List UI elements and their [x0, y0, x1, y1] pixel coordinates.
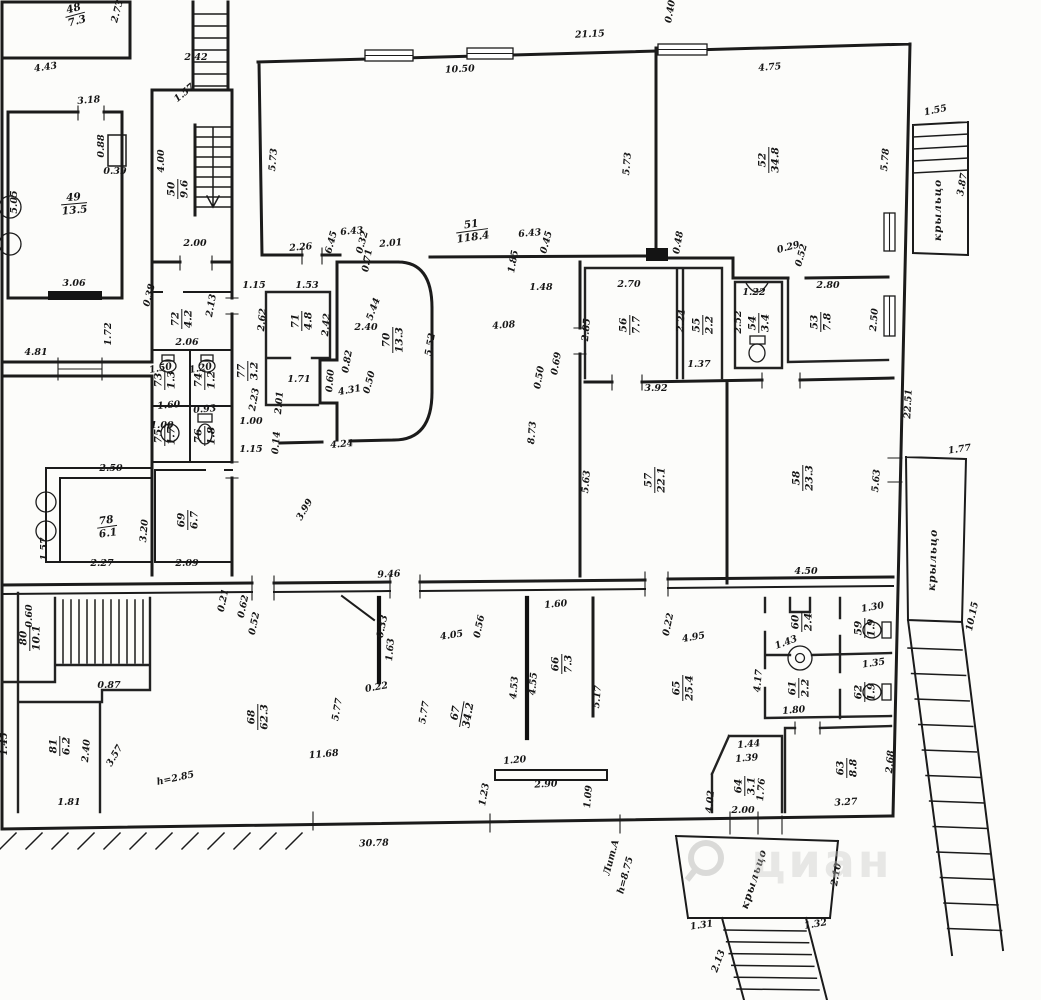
room-number: 58 [791, 470, 803, 485]
room-area: 2.2 [800, 679, 812, 698]
dimension-label: 2.52 [733, 310, 744, 335]
dimension-label: 5.05 [9, 190, 20, 214]
dimension-label: 1.60 [544, 598, 568, 611]
room-number: 77 [236, 363, 248, 378]
dimension-label: 3.57 [104, 743, 125, 769]
room-area: 6.2 [61, 737, 73, 755]
room-area: 1.2 [206, 371, 218, 389]
room-area: 3.4 [760, 314, 772, 332]
dimension-label: 0.82 [340, 349, 355, 374]
step-line [734, 977, 816, 978]
room-number: 53 [809, 315, 821, 330]
dimension-label: 2.50 [98, 463, 123, 474]
dimension-label: 2.13 [709, 948, 728, 975]
dimension-label: 4.95 [681, 630, 706, 645]
dimension-label: 1.15 [239, 444, 263, 455]
dimension-label: 1.44 [737, 738, 761, 751]
room-number: 50 [166, 181, 178, 196]
room-label: 714.8 [290, 311, 315, 331]
dimension-label: 0.22 [364, 680, 389, 695]
ground-hatch [0, 833, 302, 849]
porch-label: крыльцо [932, 179, 944, 241]
room-area: 7.7 [631, 315, 643, 334]
dimension-label: 0.56 [472, 614, 488, 639]
room-area: 34.8 [770, 147, 782, 173]
room-label: 816.2 [48, 736, 73, 756]
dimension-label: 10.50 [445, 63, 476, 76]
room-label: 761.8 [193, 426, 218, 446]
step-line [130, 833, 146, 849]
room-number: 78 [98, 513, 115, 527]
step-line [913, 146, 968, 149]
dimension-label: 21.15 [574, 28, 606, 41]
dimension-label: 10.15 [964, 600, 981, 632]
dimension-label: 4.08 [492, 319, 516, 332]
room-area: 3.2 [249, 362, 261, 380]
room-area: 23.3 [804, 465, 816, 492]
room-number: 69 [176, 512, 188, 527]
dimension-label: 2.50 [868, 307, 881, 332]
dimension-label: 1.23 [477, 782, 492, 807]
dimension-label: 2.26 [288, 241, 313, 254]
walls-main-horizontal [2, 577, 893, 594]
dimension-label: 1.09 [582, 784, 595, 808]
room-area: 4.2 [183, 310, 195, 328]
room-label: 6862.3 [246, 704, 271, 730]
dimension-label: 6.45 [323, 229, 340, 255]
dimension-label: 2.06 [174, 337, 199, 348]
room-label: 4913.5 [60, 190, 88, 217]
step-line [724, 930, 806, 931]
room-label: 786.1 [95, 513, 118, 541]
step-line [234, 833, 250, 849]
step-line [208, 833, 224, 849]
dimension-label: 5.73 [267, 147, 280, 171]
labels-layer: 487.34913.5509.651118.45234.8537.8543.45… [0, 0, 981, 975]
step-line [260, 833, 276, 849]
room-number: 51 [463, 218, 479, 232]
dimension-label: 1.76 [755, 777, 768, 801]
dimension-label: 2.01 [273, 391, 286, 416]
dimension-label: 4.75 [758, 61, 782, 74]
dimension-label: 2.40 [353, 322, 378, 333]
dimension-label: 1.81 [57, 797, 80, 808]
room-area: 7.8 [822, 312, 834, 331]
step-line [729, 954, 811, 955]
dimension-label: 1.72 [103, 322, 114, 346]
dimension-label: 0.48 [671, 230, 686, 255]
dimension-label: 4.31 [337, 383, 362, 398]
room-area: 13.5 [61, 203, 88, 217]
wall-pier [646, 248, 668, 261]
step-line [26, 833, 42, 849]
room-label: 773.2 [236, 361, 261, 381]
room-area: 10.1 [31, 625, 43, 651]
dimension-label: 2.73 [109, 0, 126, 25]
dimension-label: 5.52 [423, 332, 438, 357]
dimension-label: 5.77 [330, 697, 345, 722]
room-area: 6.1 [98, 526, 118, 540]
dimension-label: 0.87 [97, 680, 121, 691]
entry-steps [193, 14, 228, 86]
room-label: 51118.4 [454, 216, 490, 245]
step-line [922, 750, 976, 752]
dimension-label: 1.53 [295, 280, 319, 291]
dimension-label: 2.40 [80, 738, 93, 763]
room-number: 72 [170, 312, 182, 327]
step-line [913, 158, 968, 161]
step-line [156, 833, 172, 849]
walls-outer [2, 2, 910, 829]
step-line [915, 699, 969, 701]
dimension-label: 4.43 [33, 60, 58, 74]
room-number: 66 [550, 656, 562, 671]
room-area: 2.2 [704, 316, 716, 335]
dimension-label: 4.81 [24, 347, 47, 358]
annotation-note: h=8.75 [615, 855, 636, 895]
room-area: 1.3 [166, 371, 178, 389]
room-number: 61 [787, 681, 799, 696]
room-label: 667.3 [550, 654, 575, 674]
room-area: 7.3 [563, 655, 575, 673]
room-area: 2.4 [803, 613, 815, 632]
room-number: 71 [290, 314, 302, 329]
dimension-label: 1.63 [384, 637, 397, 661]
step-line [727, 942, 809, 943]
dimension-label: 1.80 [782, 704, 806, 717]
dimension-label: 2.62 [256, 307, 269, 332]
dimension-label: 2.01 [378, 237, 403, 250]
dimension-label: 1.35 [861, 656, 886, 670]
dimension-label: 0.50 [361, 369, 378, 395]
room-area: 13.3 [394, 327, 406, 353]
dimension-label: 0.88 [96, 134, 107, 158]
room-number: 76 [193, 428, 205, 443]
room-area: 9.6 [179, 179, 191, 198]
dimension-label: 4.50 [794, 566, 818, 577]
room-label: 6734.2 [447, 699, 476, 729]
step-line [182, 833, 198, 849]
porch-top-right-steps [913, 134, 968, 173]
step-line [908, 648, 962, 650]
dimension-label: 3.27 [834, 796, 858, 808]
dimension-label: 5.63 [870, 468, 883, 492]
dimension-label: 1.20 [503, 754, 527, 767]
dimension-label: 3.06 [62, 278, 86, 289]
dimension-label: 3.99 [294, 497, 315, 523]
step-line [940, 878, 994, 880]
dimension-label: 1.15 [242, 280, 266, 291]
dimension-label: 3.18 [77, 94, 101, 107]
room-area: 118.4 [456, 229, 490, 245]
dimension-label: 0.60 [324, 368, 337, 392]
room-label: 602.4 [790, 612, 815, 632]
watermark-logo-icon [691, 843, 721, 873]
dimension-label: 1.30 [860, 600, 885, 615]
windows [365, 44, 895, 336]
room-number: 49 [66, 191, 82, 204]
dimension-label: 1.77 [947, 442, 972, 456]
dimension-label: 1.48 [529, 282, 553, 293]
room-area: 1.8 [206, 426, 218, 445]
dimension-label: 22.51 [902, 389, 915, 420]
room-label: 8010.1 [18, 625, 43, 651]
dimension-label: 2.09 [174, 558, 199, 569]
dimension-label: 0.39 [103, 166, 127, 177]
room-number: 59 [853, 620, 865, 635]
room-number: 52 [757, 153, 769, 168]
dimension-label: 2.24 [675, 309, 688, 334]
room-number: 65 [671, 681, 683, 696]
room-label: 724.2 [170, 309, 195, 329]
dimension-label: 0.22 [661, 612, 677, 637]
room-label: 696.7 [176, 510, 201, 530]
step-line [737, 989, 819, 990]
room-area: 6.7 [189, 510, 201, 529]
annotation-note: h=2.85 [156, 769, 196, 788]
room-number: 62 [853, 685, 865, 700]
room-number: 68 [246, 709, 258, 724]
room-number: 56 [618, 317, 630, 332]
dimension-label: 1.00 [150, 420, 174, 431]
step-line [52, 833, 68, 849]
dimension-label: 1.37 [687, 359, 711, 370]
dimension-label: 4.24 [330, 438, 354, 451]
dimension-label: 0.60 [24, 604, 35, 628]
dimension-label: 5.77 [417, 700, 432, 725]
step-line [919, 725, 973, 727]
room-label: 7013.3 [381, 327, 406, 353]
dimension-label: 0.62 [236, 594, 252, 619]
dimension-label: 2.27 [89, 558, 114, 569]
dimension-label: 2.42 [320, 312, 333, 337]
watermark-logo-icon [687, 870, 695, 880]
room-number: 54 [747, 316, 759, 331]
dimension-label: 30.78 [359, 837, 390, 849]
dimension-label: 2.68 [884, 749, 897, 774]
dimension-label: 1.31 [689, 918, 713, 932]
dimension-label: 0.93 [193, 403, 217, 416]
dimension-label: 6.43 [518, 227, 542, 240]
room-number: 55 [691, 318, 703, 333]
room-label: 643.1 [733, 776, 758, 796]
dimension-label: 5.44 [365, 296, 383, 322]
exterior-left-steps [63, 600, 143, 663]
step-line [926, 776, 980, 778]
dimension-label: 4.05 [439, 628, 464, 642]
room-area: 22.1 [656, 467, 668, 494]
dimension-label: 3.92 [644, 383, 668, 394]
room-label: 6525.4 [671, 675, 696, 702]
step-line [937, 852, 991, 854]
room-label: 567.7 [618, 315, 643, 335]
watermark-text: циан [751, 834, 892, 888]
step-line [912, 674, 966, 676]
window-sill [48, 291, 102, 300]
dimension-label: 0.40 [663, 0, 678, 24]
dimension-label: 4.02 [704, 789, 717, 813]
room-label: 638.8 [835, 758, 860, 778]
dimension-label: 8.73 [526, 420, 539, 444]
room-label: 5234.8 [757, 147, 782, 173]
room-area: 8.8 [848, 758, 860, 777]
dimension-label: 1.39 [735, 752, 759, 765]
room-number: 57 [643, 472, 655, 487]
room-area: 25.4 [684, 675, 696, 702]
dimension-label: 2.42 [183, 52, 208, 63]
room-number: 60 [790, 614, 802, 629]
dimension-label: 1.45 [0, 732, 10, 756]
room-area: 1.9 [866, 618, 878, 637]
step-line [944, 903, 998, 905]
dimension-label: 0.14 [270, 431, 283, 455]
room-label: 537.8 [809, 312, 834, 332]
dimension-label: 5.78 [879, 147, 892, 171]
step-line [933, 827, 987, 829]
room-label: 612.2 [787, 678, 812, 698]
room-area: 1.9 [866, 682, 878, 701]
dimension-label: 0.50 [532, 365, 547, 390]
room-number: 70 [381, 332, 393, 347]
dimension-label: 1.71 [287, 374, 310, 385]
room-label: 487.3 [62, 0, 88, 29]
room-area: 4.8 [303, 311, 315, 330]
dimension-label: 0.38 [141, 282, 158, 308]
dimension-label: 0.52 [247, 611, 263, 636]
room-area: 62.3 [259, 704, 271, 730]
room-number: 81 [48, 739, 60, 754]
dimension-label: 1.60 [157, 399, 181, 412]
dimension-label: 2.80 [815, 280, 840, 291]
dimension-label: 1.55 [923, 103, 948, 119]
annotation-note: Лит.А [601, 838, 621, 877]
step-line [948, 929, 1002, 931]
room-label: 621.9 [853, 682, 878, 702]
walls-rooms-53-56 [580, 262, 893, 583]
walls-stairwell [152, 90, 232, 262]
step-line [104, 833, 120, 849]
step-line [913, 134, 968, 137]
room-label: 5722.1 [643, 467, 668, 494]
watermark: циан [687, 834, 893, 888]
room-label: 509.6 [166, 179, 191, 199]
dimension-label: 11.68 [308, 748, 339, 762]
step-line [78, 833, 94, 849]
step-line [732, 965, 814, 966]
dimension-label: 5.17 [591, 684, 604, 708]
dimension-label: 4.17 [752, 668, 765, 692]
step-line [930, 801, 984, 803]
room-number: 80 [18, 630, 30, 645]
dimension-label: 1.85 [506, 249, 521, 274]
floor-plan-svg: 487.34913.5509.651118.45234.8537.8543.45… [0, 0, 1041, 1000]
dimension-label: 1.43 [773, 633, 799, 651]
dimension-label: 4.55 [527, 671, 540, 695]
dimension-label: 1.22 [742, 287, 766, 298]
room-label: 591.9 [853, 618, 878, 638]
dimension-label: 2.90 [533, 778, 558, 790]
room-number: 63 [835, 761, 847, 776]
room-number: 64 [733, 779, 745, 794]
room-label: 552.2 [691, 315, 716, 335]
dimension-label: 9.46 [377, 568, 401, 580]
room-label: 543.4 [747, 313, 772, 333]
dimension-label: 2.23 [247, 387, 262, 413]
right-staircase-steps [908, 648, 1002, 931]
dimension-label: 4.53 [508, 675, 521, 699]
dimension-label: 5.73 [621, 151, 634, 175]
room-area: 34.2 [460, 702, 476, 729]
dimension-label: 1.00 [239, 416, 263, 427]
step-line [0, 833, 16, 849]
dimension-label: 2.13 [204, 293, 219, 319]
dimension-label: 2.00 [182, 238, 207, 249]
room-label: 5823.3 [791, 465, 816, 492]
dimension-label: 2.85 [580, 317, 593, 342]
dimension-label: 4.00 [156, 149, 167, 173]
dimension-label: 2.70 [616, 279, 641, 290]
step-line [286, 833, 302, 849]
dimension-label: 1.57 [39, 537, 50, 561]
dimension-label: 3.20 [138, 518, 151, 542]
porch-label: крыльцо [926, 529, 940, 592]
scanned-floor-plan-page: 487.34913.5509.651118.45234.8537.8543.45… [0, 0, 1041, 1000]
dimension-label: 2.00 [730, 805, 755, 816]
dimension-label: 5.63 [580, 469, 593, 493]
dimension-label: 0.69 [549, 351, 564, 376]
